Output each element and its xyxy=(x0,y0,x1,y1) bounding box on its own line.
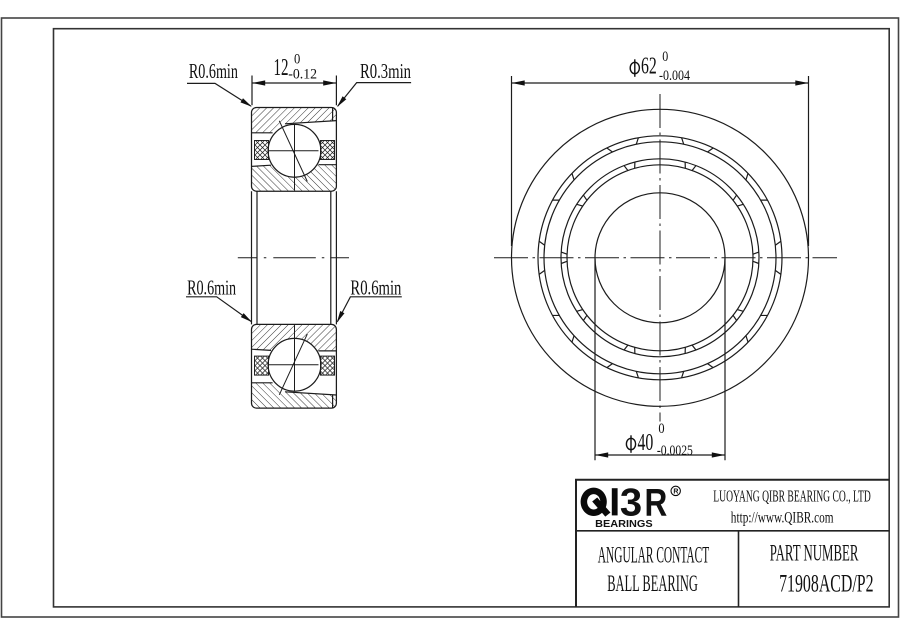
svg-text:R0.6min: R0.6min xyxy=(189,59,238,83)
svg-text:R: R xyxy=(673,488,678,495)
svg-text:40: 40 xyxy=(638,429,654,456)
svg-text:http://www.QIBR.com: http://www.QIBR.com xyxy=(731,510,834,527)
svg-text:62: 62 xyxy=(641,53,657,80)
svg-text:PART NUMBER: PART NUMBER xyxy=(770,541,859,566)
svg-text:71908ACD/P2: 71908ACD/P2 xyxy=(779,569,874,598)
svg-text:3: 3 xyxy=(620,481,642,524)
svg-text:R0.6min: R0.6min xyxy=(187,276,236,300)
svg-text:R0.6min: R0.6min xyxy=(350,276,401,300)
svg-text:-0.004: -0.004 xyxy=(659,68,691,84)
svg-text:LUOYANG QIBR BEARING CO., LTD: LUOYANG QIBR BEARING CO., LTD xyxy=(713,487,871,506)
svg-text:0: 0 xyxy=(294,51,300,67)
svg-text:ANGULAR CONTACT: ANGULAR CONTACT xyxy=(598,543,709,568)
svg-text:BEARINGS: BEARINGS xyxy=(595,519,653,530)
svg-text:12: 12 xyxy=(274,54,289,81)
svg-text:0: 0 xyxy=(662,49,668,65)
svg-text:-0.12: -0.12 xyxy=(288,67,317,83)
svg-text:-0.0025: -0.0025 xyxy=(657,443,693,459)
svg-text:R0.3min: R0.3min xyxy=(360,59,411,83)
svg-text:0: 0 xyxy=(658,421,664,437)
svg-text:R: R xyxy=(645,481,668,524)
svg-text:BALL BEARING: BALL BEARING xyxy=(607,571,698,596)
